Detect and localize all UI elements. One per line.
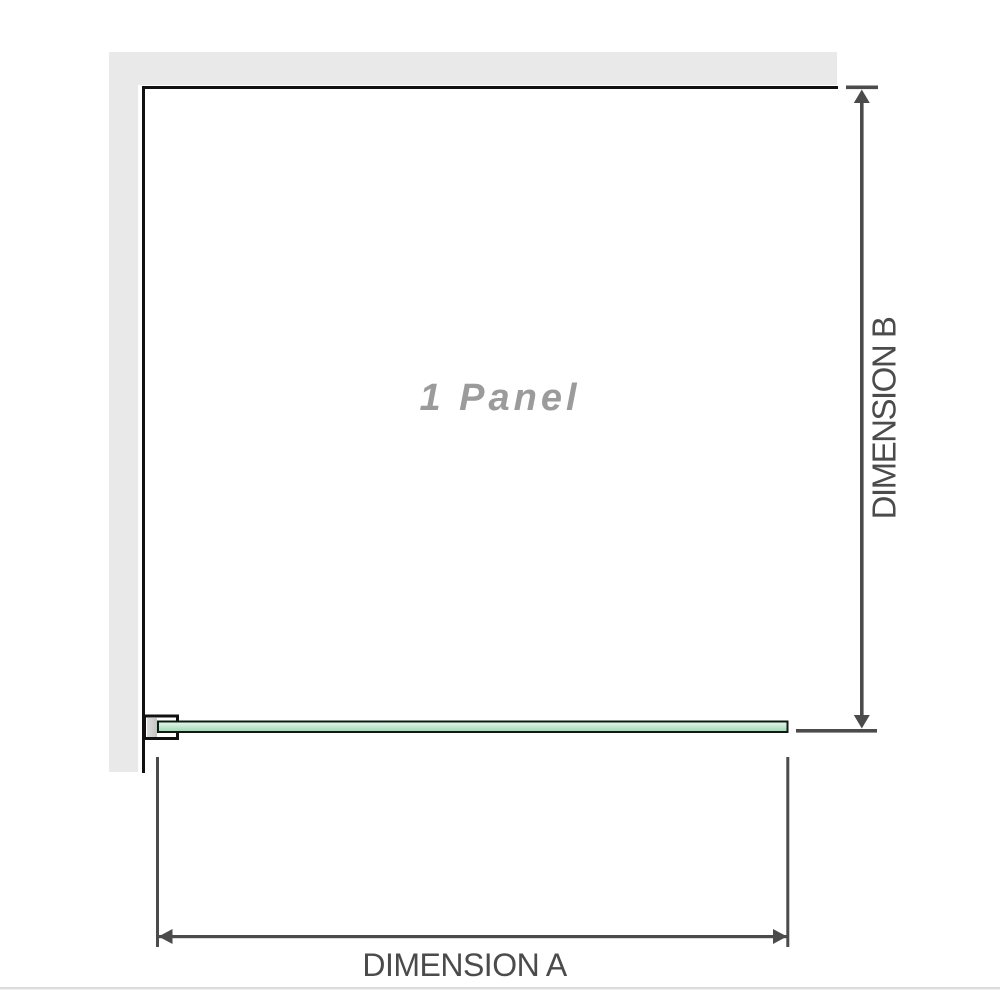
svg-text:DIMENSION B: DIMENSION B (866, 317, 903, 519)
svg-text:1 Panel: 1 Panel (419, 377, 580, 419)
svg-text:DIMENSION A: DIMENSION A (362, 947, 567, 983)
